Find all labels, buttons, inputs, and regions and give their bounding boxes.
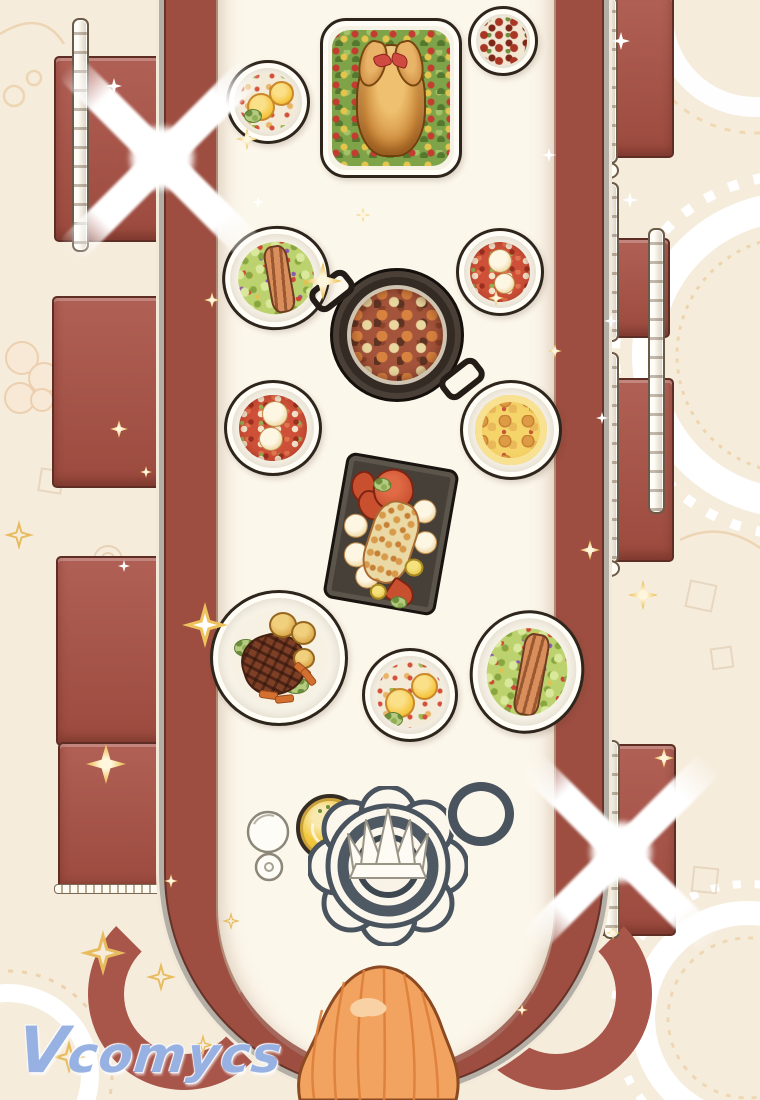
chair-post <box>602 352 619 564</box>
steak-food <box>230 610 328 706</box>
girl-orange-hair <box>292 958 464 1100</box>
illustration-banquet-table: Vcomycs <box>0 0 760 1100</box>
chair-left-trim <box>54 884 174 894</box>
lemon-wedge <box>404 557 426 578</box>
dish-lemon-shrimp-plate <box>460 380 562 480</box>
dish-eggs-plate-bottom <box>362 648 458 742</box>
dish-roast-turkey-platter <box>320 18 462 178</box>
charger-plate <box>308 786 468 946</box>
wine-glass <box>240 804 306 890</box>
cross-glint <box>40 38 284 278</box>
chair-left-2 <box>52 296 174 488</box>
dish-beef-bites-plate <box>468 6 538 76</box>
roast-potato <box>291 621 316 645</box>
eggs-food <box>377 662 444 727</box>
chair-left-3 <box>56 556 176 746</box>
chair-post <box>648 228 665 514</box>
dish-seafood-plate-left <box>224 380 322 476</box>
dish-stew-pot <box>330 268 464 402</box>
grilled-fillet <box>512 631 552 717</box>
watermark: Vcomycs <box>14 1014 286 1088</box>
dish-seafood-plate-right <box>456 228 544 316</box>
beef-bites <box>479 17 526 64</box>
dish-steak-plate <box>210 590 348 726</box>
tomato-seafood <box>470 242 531 303</box>
tomato-seafood <box>239 395 307 462</box>
salad-food <box>478 620 577 724</box>
lemon-wedge <box>369 582 389 601</box>
carrot <box>275 694 295 704</box>
turkey-ribbon <box>374 52 408 68</box>
beef-stew <box>347 285 447 385</box>
lemon-shrimp <box>475 395 546 465</box>
cross-glint <box>502 736 740 968</box>
